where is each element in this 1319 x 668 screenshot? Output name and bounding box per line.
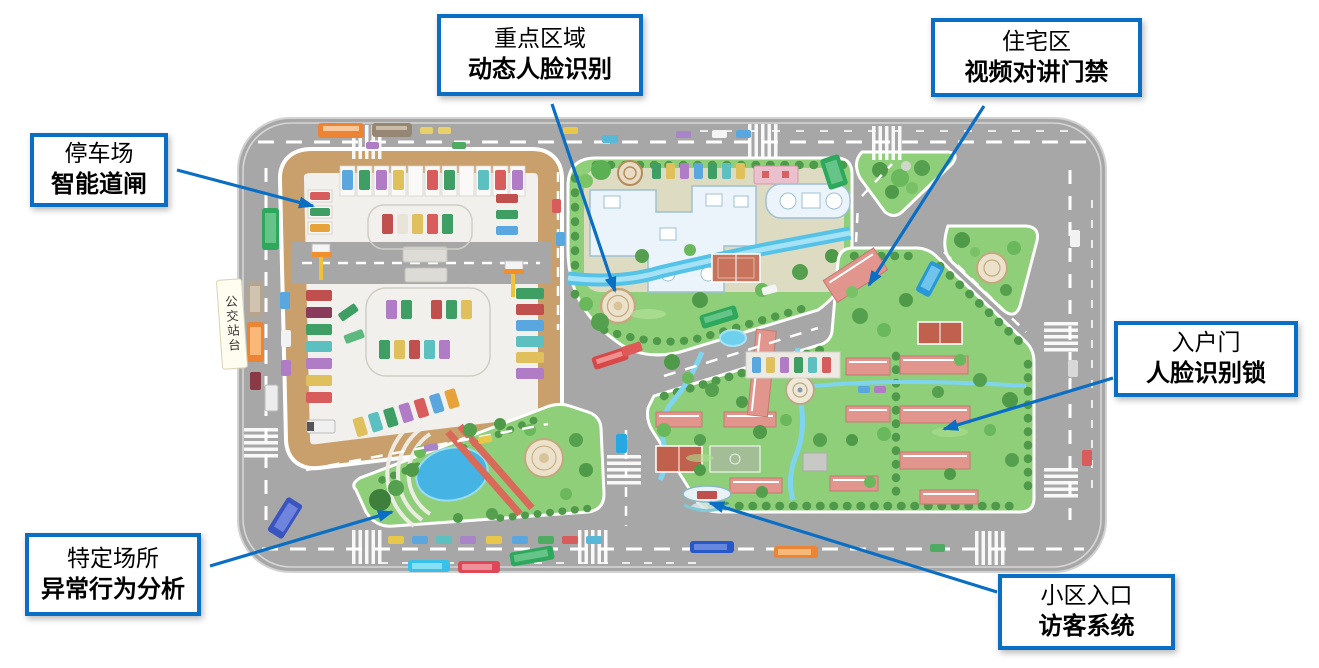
callout-feature: 访客系统 bbox=[1039, 611, 1135, 642]
callout-title: 特定场所 bbox=[67, 544, 159, 574]
parking-lot bbox=[291, 162, 551, 455]
callout-special-place: 特定场所 异常行为分析 bbox=[25, 533, 201, 616]
callout-title: 入户门 bbox=[1172, 328, 1241, 358]
callout-feature: 动态人脸识别 bbox=[468, 54, 612, 85]
callout-feature: 视频对讲门禁 bbox=[965, 57, 1109, 88]
callout-community-entrance: 小区入口 访客系统 bbox=[998, 574, 1175, 650]
callout-residential-area: 住宅区 视频对讲门禁 bbox=[931, 18, 1142, 97]
callout-key-area: 重点区域 动态人脸识别 bbox=[437, 14, 643, 96]
callout-entry-door: 入户门 人脸识别锁 bbox=[1114, 321, 1298, 397]
callout-title: 住宅区 bbox=[1002, 27, 1071, 57]
callout-parking: 停车场 智能道闸 bbox=[30, 133, 168, 207]
callout-feature: 人脸识别锁 bbox=[1146, 358, 1266, 389]
callout-title: 重点区域 bbox=[494, 24, 586, 54]
diagram-canvas: 公交站台 重点区域 动态人脸识别 住宅区 视频对讲门禁 停车场 智能道闸 入户门… bbox=[0, 0, 1319, 668]
callout-title: 小区入口 bbox=[1041, 581, 1133, 611]
callout-title: 停车场 bbox=[65, 139, 134, 169]
callout-feature: 智能道闸 bbox=[51, 169, 147, 200]
callout-feature: 异常行为分析 bbox=[41, 574, 185, 605]
